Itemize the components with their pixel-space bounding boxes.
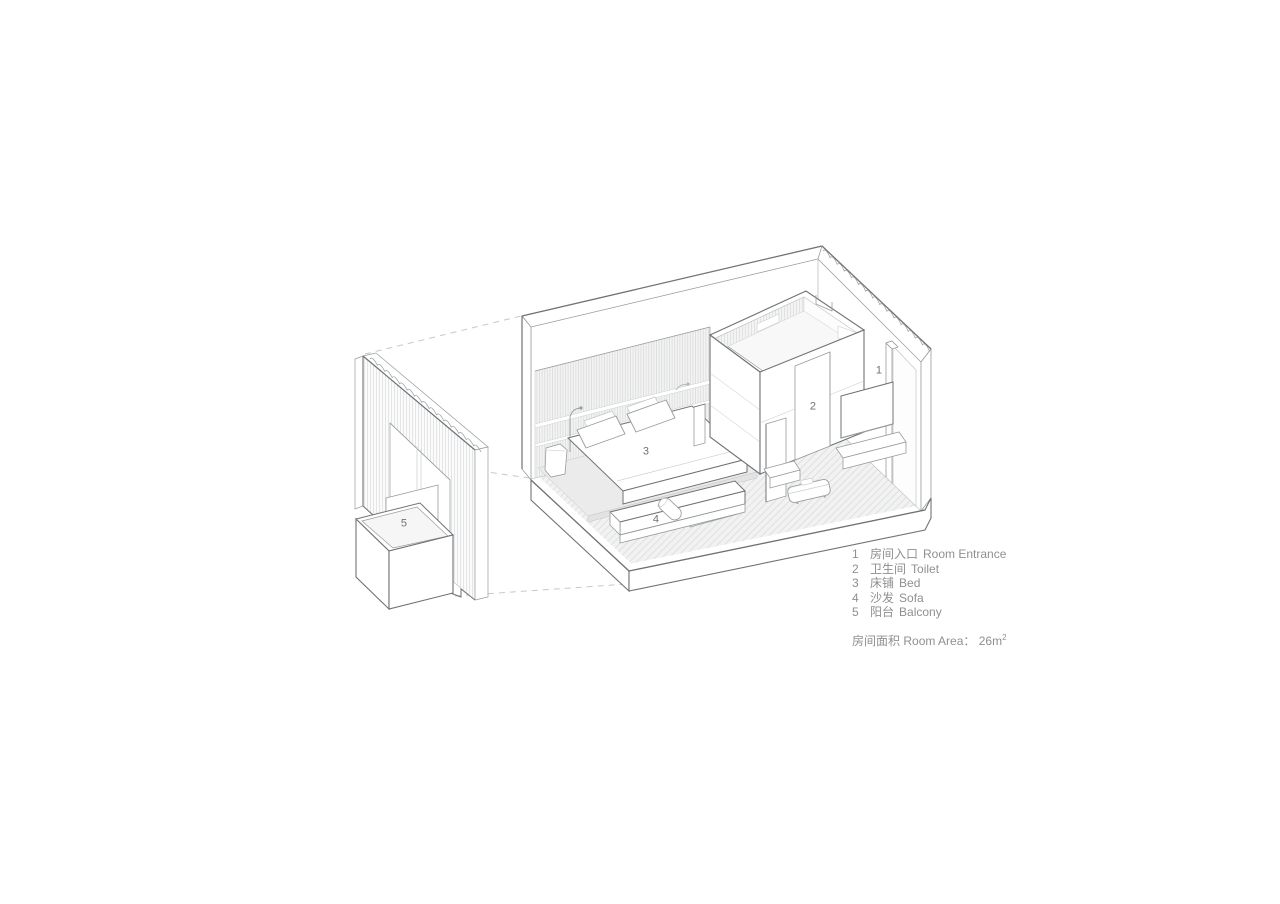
- legend-label-en: Sofa: [899, 591, 924, 606]
- balcony-assembly: [355, 353, 488, 609]
- area-value: 26m: [979, 634, 1002, 648]
- legend-label-en: Bed: [899, 576, 920, 591]
- area-sup: 2: [1002, 633, 1006, 642]
- mirror-panel: [766, 418, 786, 502]
- bed-marker: 3: [643, 447, 649, 458]
- area-label-en: Room Area: [903, 634, 963, 648]
- legend-num: 1: [852, 547, 861, 562]
- legend-num: 2: [852, 562, 861, 577]
- toilet-marker: 2: [810, 402, 816, 413]
- guide-top: [365, 316, 521, 354]
- axonometric-drawing: [0, 0, 1280, 904]
- sofa-marker: 4: [653, 515, 659, 526]
- room-area-note: 房间面积 Room Area： 26m2: [852, 632, 1007, 649]
- main-room: [522, 246, 931, 591]
- back-wall-end-face: [522, 316, 531, 480]
- legend-label-zh: 沙发: [870, 591, 894, 606]
- legend-num: 3: [852, 576, 861, 591]
- entry-wall-end-face: [921, 349, 931, 511]
- legend-item-room-entrance: 1 房间入口 Room Entrance: [852, 547, 1006, 562]
- balcony-marker: 5: [401, 519, 407, 530]
- legend-item-balcony: 5 阳台 Balcony: [852, 605, 1006, 620]
- legend-num: 5: [852, 605, 861, 620]
- legend-label-zh: 床铺: [870, 576, 894, 591]
- legend: 1 房间入口 Room Entrance 2 卫生间 Toilet 3 床铺 B…: [852, 547, 1006, 620]
- facade-left-end: [355, 356, 363, 509]
- legend-item-bed: 3 床铺 Bed: [852, 576, 1006, 591]
- room-entrance-marker: 1: [876, 366, 882, 377]
- area-label-zh: 房间面积: [852, 634, 900, 648]
- facade-right-end: [475, 447, 488, 600]
- legend-label-en: Room Entrance: [923, 547, 1006, 562]
- legend-label-en: Balcony: [899, 605, 942, 620]
- legend-item-toilet: 2 卫生间 Toilet: [852, 562, 1006, 577]
- legend-num: 4: [852, 591, 861, 606]
- legend-item-sofa: 4 沙发 Sofa: [852, 591, 1006, 606]
- stool: [545, 444, 567, 477]
- bedside-table: [694, 404, 705, 446]
- axonometric-room-diagram-page: 1 2 3 4 5 1 房间入口 Room Entrance 2 卫生间 Toi…: [0, 0, 1280, 904]
- legend-label-zh: 阳台: [870, 605, 894, 620]
- area-colon: ：: [963, 634, 975, 648]
- legend-label-zh: 卫生间: [870, 562, 906, 577]
- legend-label-en: Toilet: [911, 562, 939, 577]
- legend-label-zh: 房间入口: [870, 547, 918, 562]
